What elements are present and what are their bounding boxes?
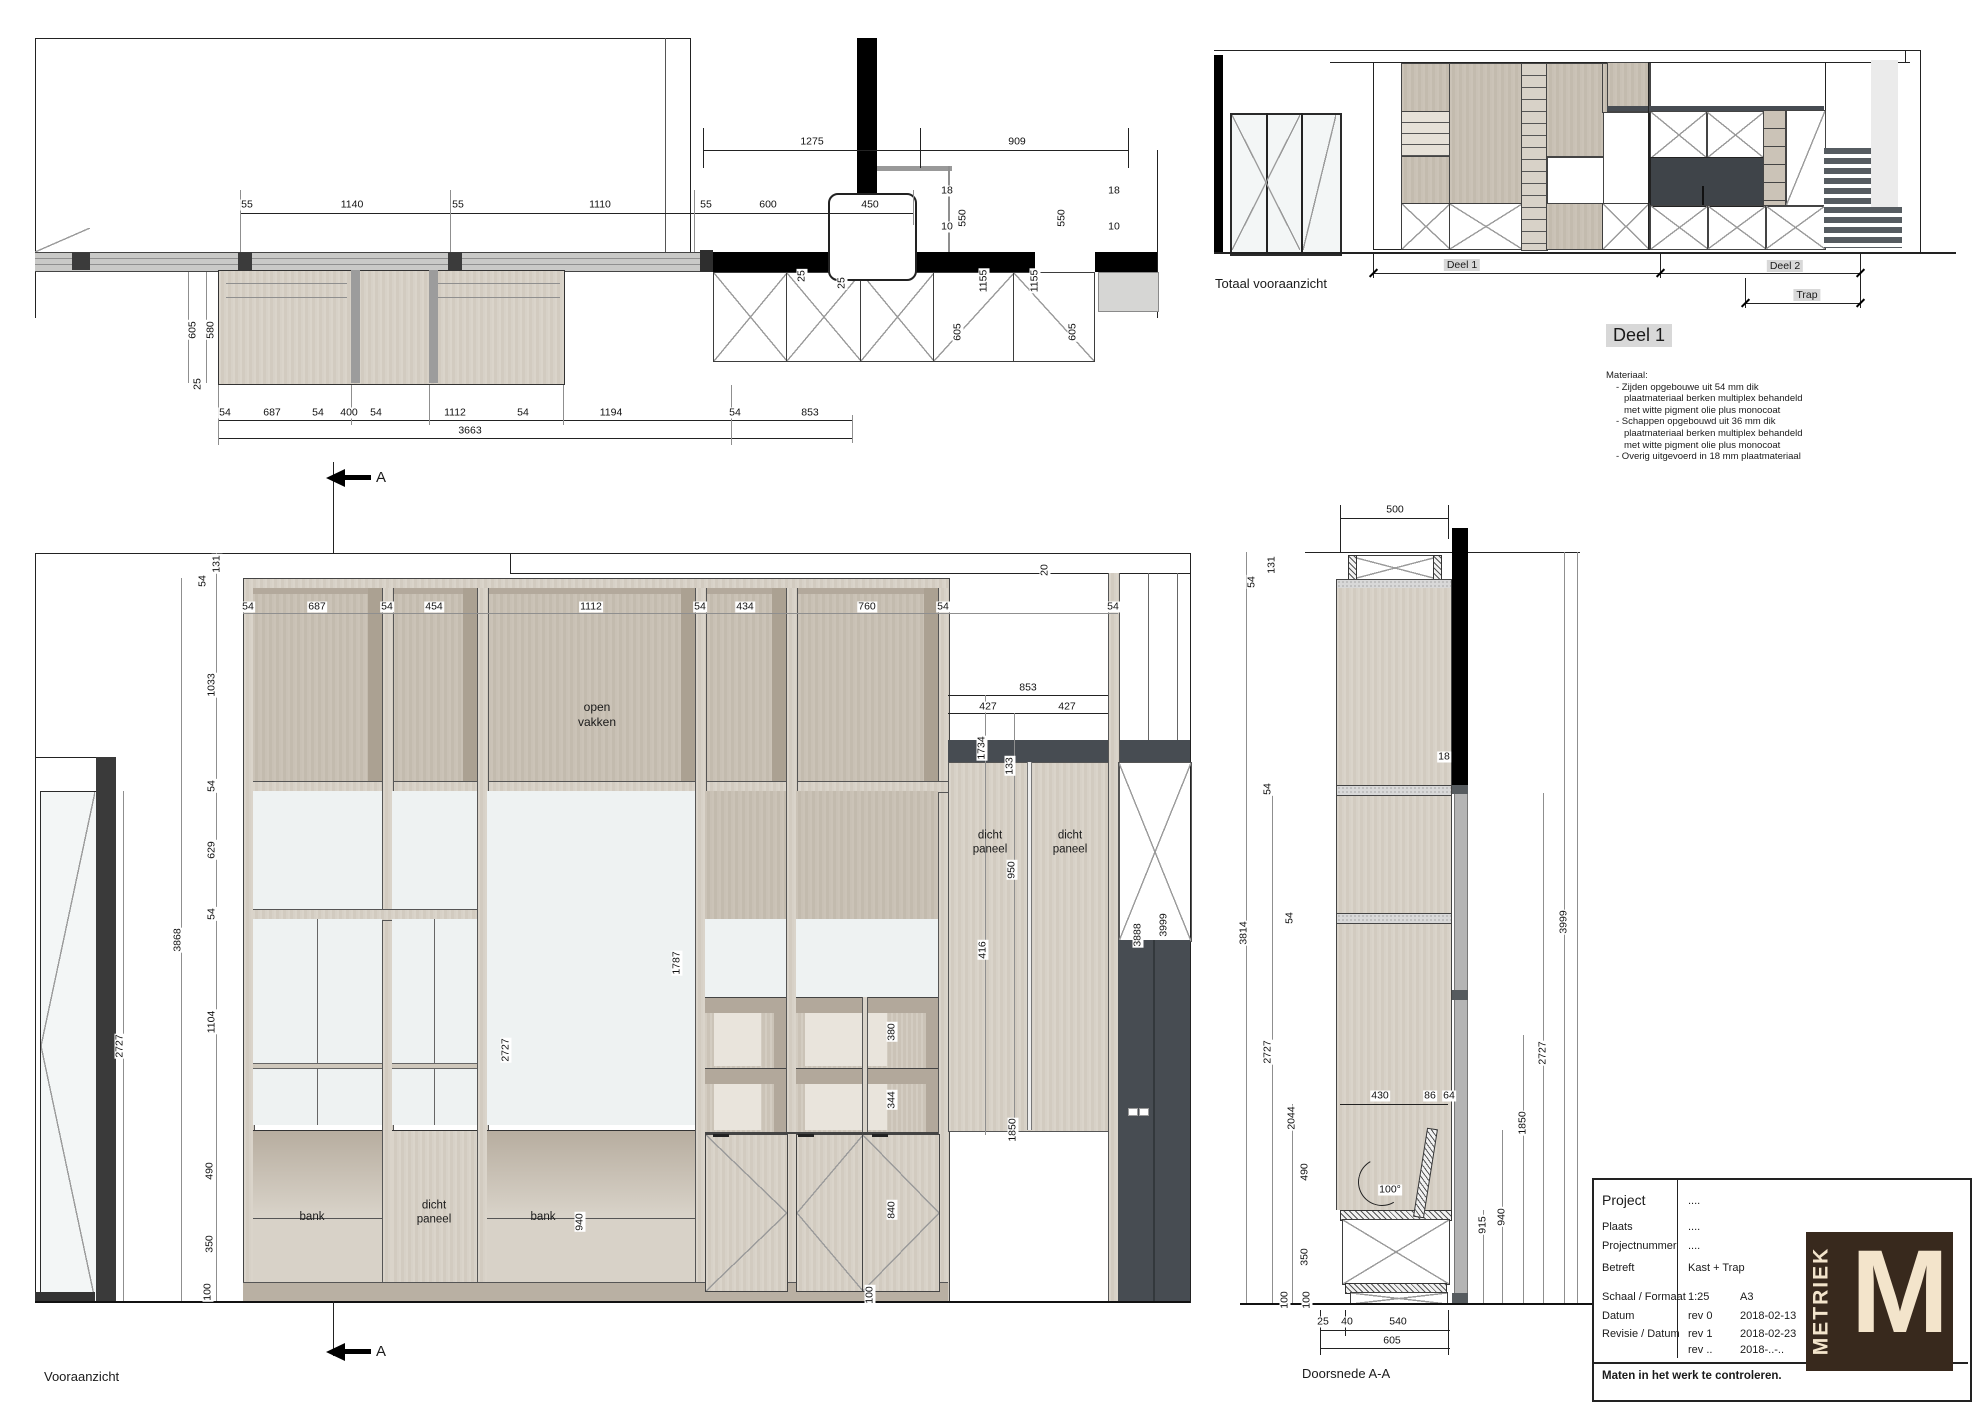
drawing-sheet: Deel 1 Deel 2 Trap Totaal vooraanzicht D… xyxy=(0,0,1987,1406)
dim-label: 131 xyxy=(1266,555,1277,575)
dim-label: 86 xyxy=(1423,1090,1437,1101)
dim-label: 2727 xyxy=(1262,1039,1273,1064)
dim-label: 18 xyxy=(1437,751,1451,762)
dim-label: 605 xyxy=(1382,1335,1402,1346)
dim-label: 2727 xyxy=(1537,1040,1548,1065)
dim-label: 100° xyxy=(1378,1184,1402,1195)
dim-label: 1850 xyxy=(1517,1110,1528,1135)
dim-label: 64 xyxy=(1442,1090,1456,1101)
dim-label: 100 xyxy=(1279,1290,1290,1310)
dim-label: 940 xyxy=(1496,1207,1507,1227)
dim-label: 500 xyxy=(1385,504,1405,515)
dim-label: 2044 xyxy=(1286,1105,1297,1130)
dim-label: 100 xyxy=(1301,1290,1312,1310)
dim-label: 490 xyxy=(1299,1162,1310,1182)
dim-label: 915 xyxy=(1477,1215,1488,1235)
dim-label: 540 xyxy=(1388,1316,1408,1327)
dim-label: 40 xyxy=(1340,1316,1354,1327)
dim-label: 54 xyxy=(1284,911,1295,925)
dim-label: 350 xyxy=(1299,1247,1310,1267)
section-dimensions: 5001315418545438142727204449035010010043… xyxy=(0,0,1987,1406)
dim-label: 3814 xyxy=(1238,920,1249,945)
dim-label: 430 xyxy=(1370,1090,1390,1101)
dim-label: 3999 xyxy=(1558,909,1569,934)
dim-label: 25 xyxy=(1316,1316,1330,1327)
dim-label: 54 xyxy=(1246,575,1257,589)
dim-label: 54 xyxy=(1262,782,1273,796)
